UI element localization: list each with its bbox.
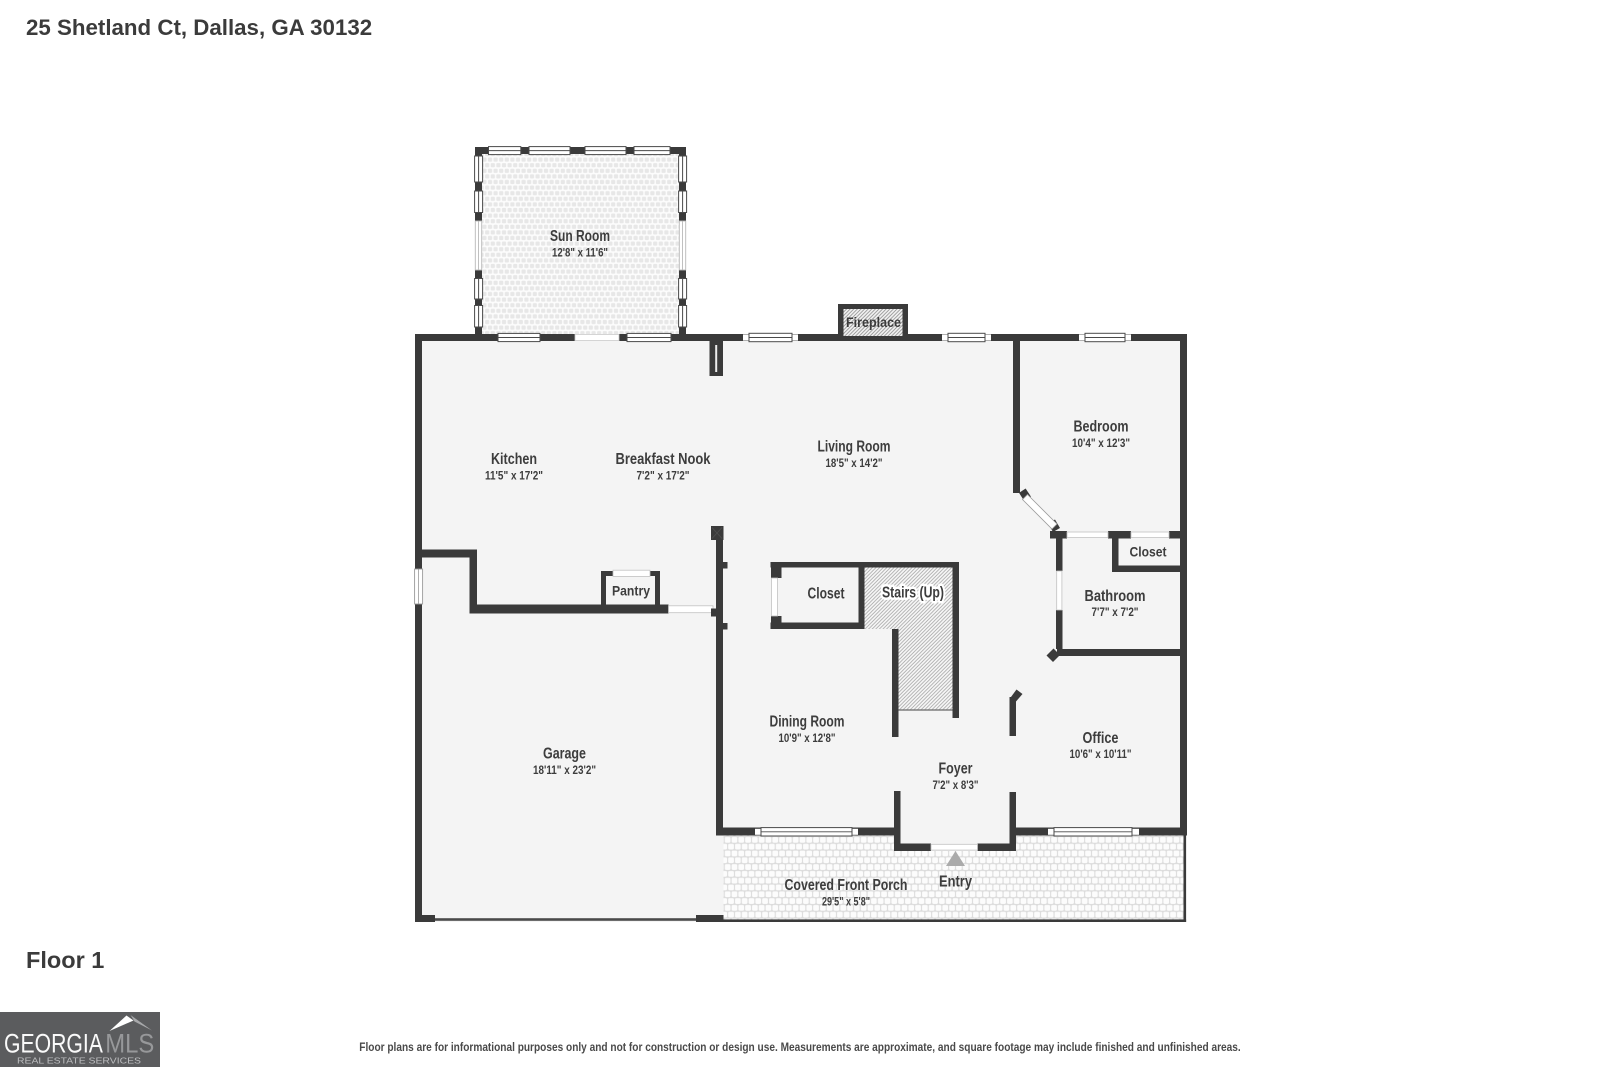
svg-text:Pantry: Pantry <box>612 584 650 599</box>
svg-text:Garage: Garage <box>543 746 586 763</box>
svg-text:18'11" x 23'2": 18'11" x 23'2" <box>533 763 596 777</box>
svg-text:Kitchen: Kitchen <box>491 451 537 468</box>
svg-text:Closet: Closet <box>808 586 845 603</box>
svg-text:Living Room: Living Room <box>818 439 891 456</box>
svg-text:7'2" x 8'3": 7'2" x 8'3" <box>933 778 979 792</box>
svg-text:Fireplace: Fireplace <box>846 315 901 330</box>
svg-text:Office: Office <box>1083 730 1119 747</box>
svg-text:Sun Room: Sun Room <box>550 228 610 245</box>
svg-text:7'2" x 17'2": 7'2" x 17'2" <box>637 469 690 483</box>
svg-text:Stairs (Up): Stairs (Up) <box>882 585 944 602</box>
svg-text:10'4" x 12'3": 10'4" x 12'3" <box>1072 436 1130 450</box>
svg-text:Breakfast Nook: Breakfast Nook <box>616 451 711 468</box>
svg-text:29'5" x 5'8": 29'5" x 5'8" <box>822 895 870 909</box>
svg-text:7'7" x 7'2": 7'7" x 7'2" <box>1092 605 1139 619</box>
svg-text:Covered Front Porch: Covered Front Porch <box>785 877 908 894</box>
svg-text:Closet: Closet <box>1130 545 1167 560</box>
svg-text:Bedroom: Bedroom <box>1074 419 1129 436</box>
svg-text:18'5" x 14'2": 18'5" x 14'2" <box>826 456 883 470</box>
svg-text:Bathroom: Bathroom <box>1085 588 1146 605</box>
svg-text:Entry: Entry <box>939 874 972 891</box>
svg-text:Dining Room: Dining Room <box>770 714 845 731</box>
svg-text:12'8" x 11'6": 12'8" x 11'6" <box>552 246 608 260</box>
svg-text:11'5" x 17'2": 11'5" x 17'2" <box>485 469 543 483</box>
svg-text:Foyer: Foyer <box>939 761 973 778</box>
svg-text:10'6" x 10'11": 10'6" x 10'11" <box>1070 747 1132 761</box>
svg-text:10'9" x 12'8": 10'9" x 12'8" <box>779 731 836 745</box>
